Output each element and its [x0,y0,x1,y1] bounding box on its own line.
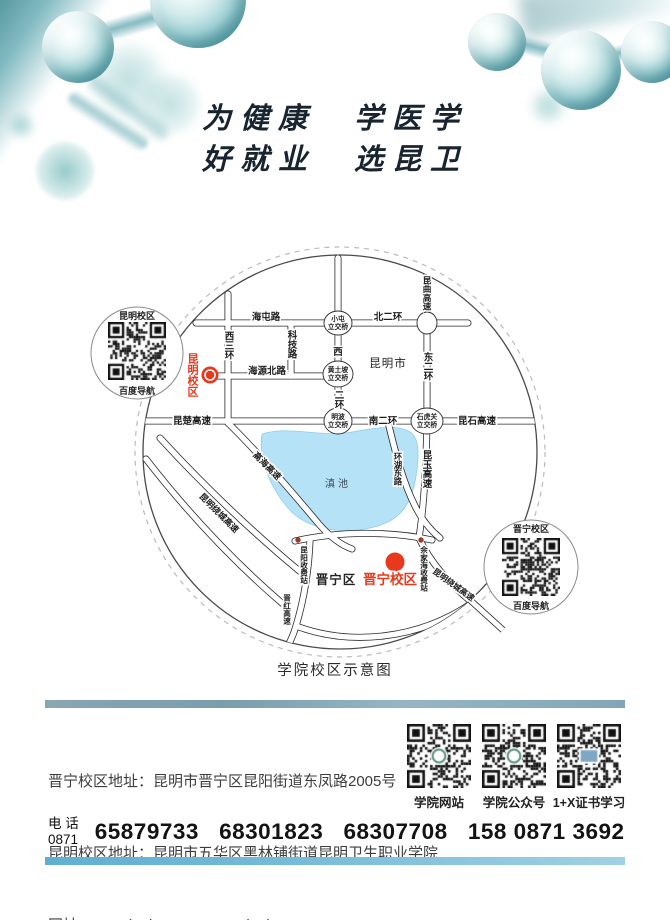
qr-label-website: 学院网站 [414,792,464,811]
interchange-shihuguan-line2: 立交桥 [417,420,438,429]
toll-dot-kunyang [295,537,300,542]
interchange-mingbo-line1: 明波 [331,412,345,421]
toll-dot-yujiahai [418,537,423,542]
road-label-keji: 科技路 [286,329,298,359]
map-qr-kunming-subtitle: 百度导航 [119,385,155,396]
slogan: 为健康 学医学 好就业 选昆卫 [0,98,670,180]
qr-code-kunming-campus-nav [108,322,166,380]
map-caption: 学院校区示意图 [0,659,670,680]
campus-map: 小屯 立交桥 黄土坡 立交桥 明波 立交桥 石虎关 立交桥 海屯路 北二环 昆曲… [80,240,600,670]
map-qr-jinning-title: 晋宁校区 [513,523,549,534]
qr-item-website: 学院网站 [407,724,471,811]
road-label-dong-erhuan: 东二环 [422,351,434,381]
road-label-kunshi: 昆石高速 [458,415,497,427]
road-label-erhuan: 二环 [333,390,345,410]
interchange-xiaotun-line2: 立交桥 [328,322,349,331]
qr-code-website [407,724,471,788]
qr-item-wechat: 学院公众号 [482,724,546,811]
marker-kunming-campus-label: 昆明校区 [186,353,199,398]
qr-label-certificate: 1+X证书学习 [553,792,626,811]
marker-jinning-campus-label: 晋宁校区 [363,571,417,587]
website-line: 网址：www.kmhpc.net www.kmhvc.cn [48,914,438,920]
molecule-sphere [621,21,670,83]
road-label-jinhong: 晋红高速 [282,594,291,626]
phone-label-text: 电 话 [48,816,79,832]
road-label-huanhu: 环湖东路 [393,452,403,487]
map-qr-kunming-title: 昆明校区 [119,310,155,321]
interchange-xiaotun-line1: 小屯 [330,314,345,323]
brochure-page: 为健康 学医学 好就业 选昆卫 [0,0,670,920]
interchange-mingbo-line2: 立交桥 [328,420,349,429]
divider-bar-bottom [45,857,625,865]
slogan-line-1: 为健康 学医学 [0,98,670,139]
lake-label: 滇池 [325,477,351,490]
road-label-nan-erhuan: 南二环 [369,415,398,427]
interchange-shihuguan-line1: 石虎关 [416,412,438,421]
road-label-yujiahai: 余家海收费站 [419,545,428,593]
slogan-line-2: 好就业 选昆卫 [0,139,670,180]
qr-item-certificate: 1+X证书学习 [557,724,621,811]
road-label-kunyu: 昆玉高速 [421,450,433,489]
road-label-bei-erhuan: 北二环 [374,311,403,323]
road-label-kunchu: 昆楚高速 [173,415,212,427]
road-label-xi: 西 [333,347,343,358]
phone-area-code: 0871 [48,832,79,848]
divider-bar-top [45,700,625,708]
qr-code-jinning-campus-nav [502,538,560,596]
road-label-kunqu: 昆曲高速 [422,276,432,312]
district-label: 晋宁区 [316,572,357,587]
qr-code-certificate [557,724,621,788]
phone-row: 电 话 0871 65879733 68301823 68307708 158 … [48,816,625,848]
road-label-kunyang: 昆阳收费站 [299,545,308,585]
footer-qr-row: 学院网站 学院公众号 1+X证书学习 [407,724,621,811]
molecule-sphere [150,0,246,48]
road-label-haiyuan: 海源北路 [248,365,287,377]
interchange-huangtupo-line1: 黄土坡 [328,365,349,374]
qr-code-wechat [482,724,546,788]
molecule-sphere [42,11,114,83]
road-label-haitun: 海屯路 [252,311,281,323]
phone-label: 电 话 0871 [48,816,79,848]
phone-numbers: 65879733 68301823 68307708 158 0871 3692 [95,819,625,845]
qr-label-wechat: 学院公众号 [483,792,546,811]
molecule-sphere [468,13,526,71]
road-raocheng-se-stub-fill [470,600,503,630]
map-qr-jinning-subtitle: 百度导航 [513,600,549,611]
address-jinning: 晋宁校区地址：昆明市晋宁区昆阳街道东凤路2005号 [48,770,438,794]
interchange-huangtupo-line2: 立交桥 [328,373,349,382]
road-label-xi-sanhuan: 西三环 [223,331,235,360]
city-label: 昆明市 [369,356,407,370]
